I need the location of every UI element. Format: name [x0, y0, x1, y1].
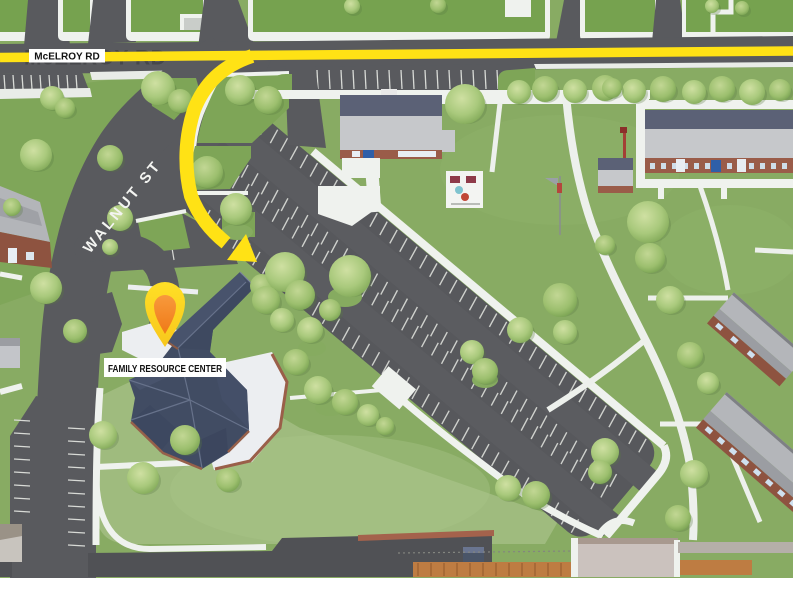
svg-text:FAMILY RESOURCE CENTER: FAMILY RESOURCE CENTER [108, 363, 222, 375]
svg-text:McELROY RD: McELROY RD [34, 52, 99, 63]
